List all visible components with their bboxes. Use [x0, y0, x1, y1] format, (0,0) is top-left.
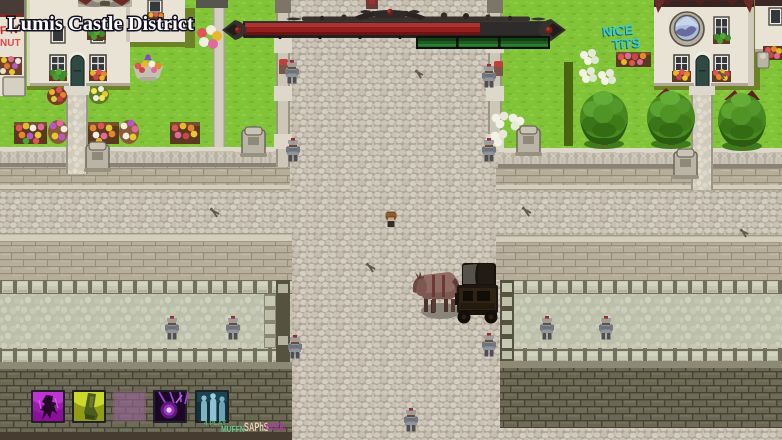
- svg-text:Lumis Castle District: Lumis Castle District: [7, 13, 194, 35]
- svg-text:SAPhS: SAPhS: [244, 421, 269, 434]
- svg-text:NUT: NUT: [0, 38, 21, 49]
- svg-text:TiTS: TiTS: [612, 35, 641, 52]
- svg-text:MUFFN: MUFFN: [221, 424, 245, 434]
- svg-text:COOL: COOL: [266, 421, 286, 433]
